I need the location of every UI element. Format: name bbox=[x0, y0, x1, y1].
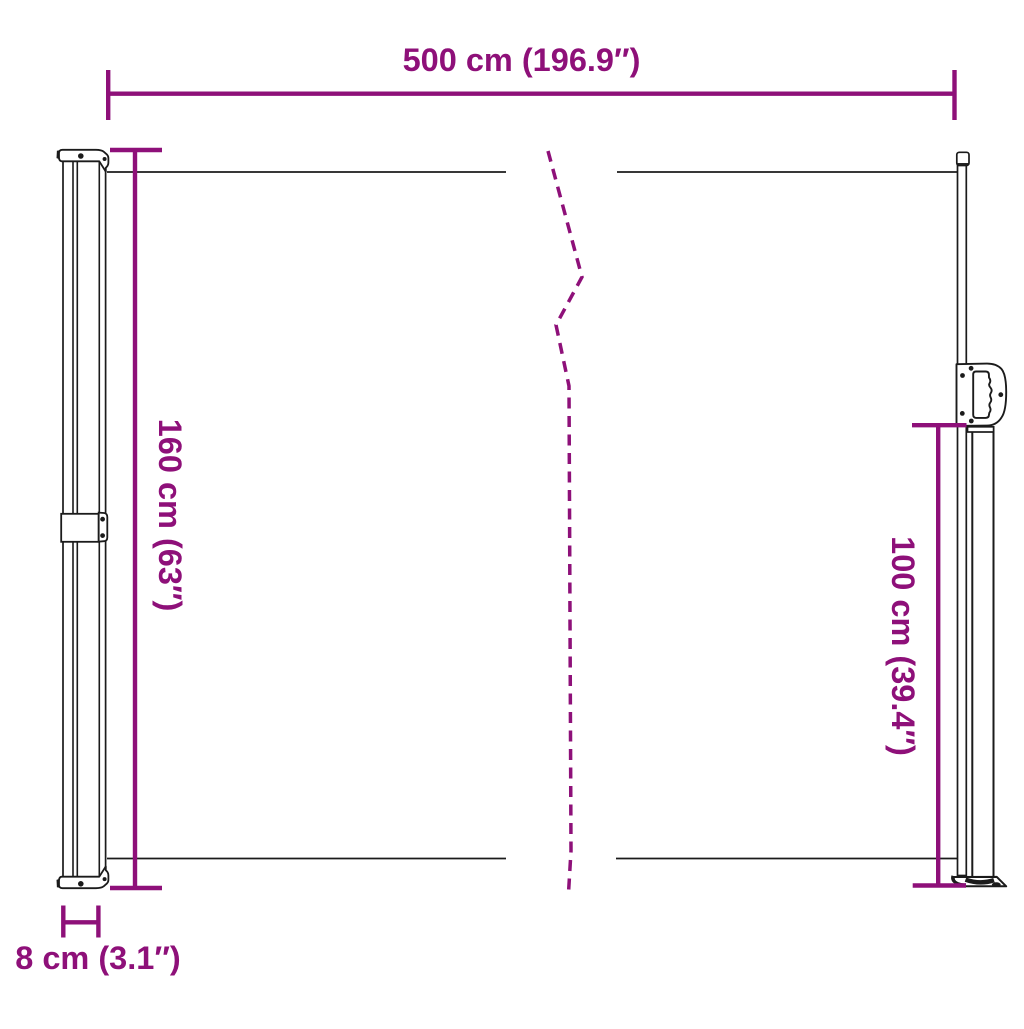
svg-text:500 cm (196.9″): 500 cm (196.9″) bbox=[403, 42, 641, 78]
svg-text:100 cm (39.4″): 100 cm (39.4″) bbox=[885, 536, 921, 756]
svg-text:160 cm (63″): 160 cm (63″) bbox=[152, 419, 188, 612]
svg-text:8 cm (3.1″): 8 cm (3.1″) bbox=[15, 940, 181, 976]
